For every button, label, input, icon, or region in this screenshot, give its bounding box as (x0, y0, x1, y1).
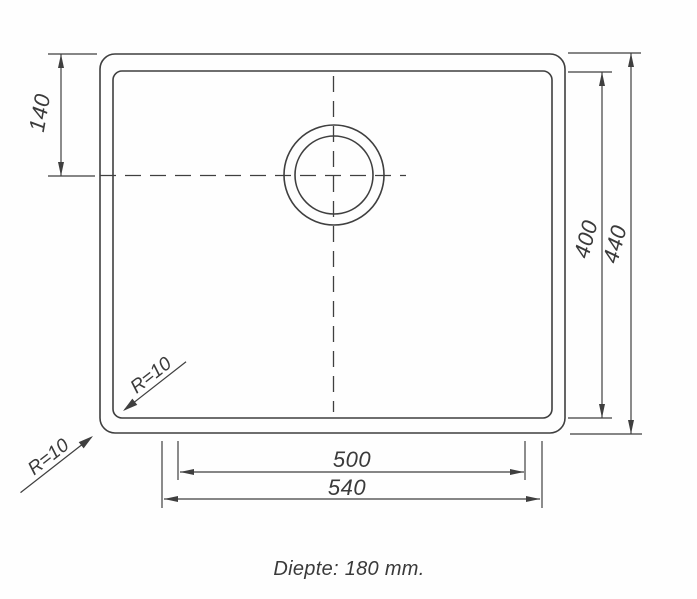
dim-label-440: 440 (598, 222, 632, 266)
radius-callout-inner: R=10 (110, 345, 188, 414)
arrowhead-icon (628, 53, 634, 67)
arrowhead-icon (164, 496, 178, 502)
arrowhead-icon (58, 162, 64, 176)
arrowhead-icon (180, 469, 194, 475)
arrowhead-icon (526, 496, 540, 502)
sink-outer-rim (100, 54, 565, 433)
centerlines (100, 76, 406, 412)
sink-inner-bowl (113, 71, 552, 418)
arrowhead-icon (599, 404, 605, 418)
dim-label-540: 540 (328, 475, 366, 500)
dimension-140: 140 (24, 54, 97, 176)
arrowhead-icon (58, 54, 64, 68)
dim-label-500: 500 (333, 447, 371, 472)
sink-technical-drawing: 140 400 440 (0, 0, 697, 599)
drawing-page: 140 400 440 (0, 0, 697, 599)
dimension-500-540: 500 540 (162, 441, 542, 508)
arrowhead-icon (79, 433, 96, 449)
depth-note: Diepte: 180 mm. (273, 558, 424, 580)
dim-label-140: 140 (24, 91, 55, 133)
arrowhead-icon (628, 420, 634, 434)
arrowhead-icon (121, 399, 138, 415)
arrowhead-icon (510, 469, 524, 475)
arrowhead-icon (599, 72, 605, 86)
dimension-400-440: 400 440 (568, 53, 642, 434)
radius-callout-outer: R=10 (8, 419, 96, 495)
dim-label-400: 400 (569, 217, 603, 261)
sink-body (100, 54, 565, 433)
